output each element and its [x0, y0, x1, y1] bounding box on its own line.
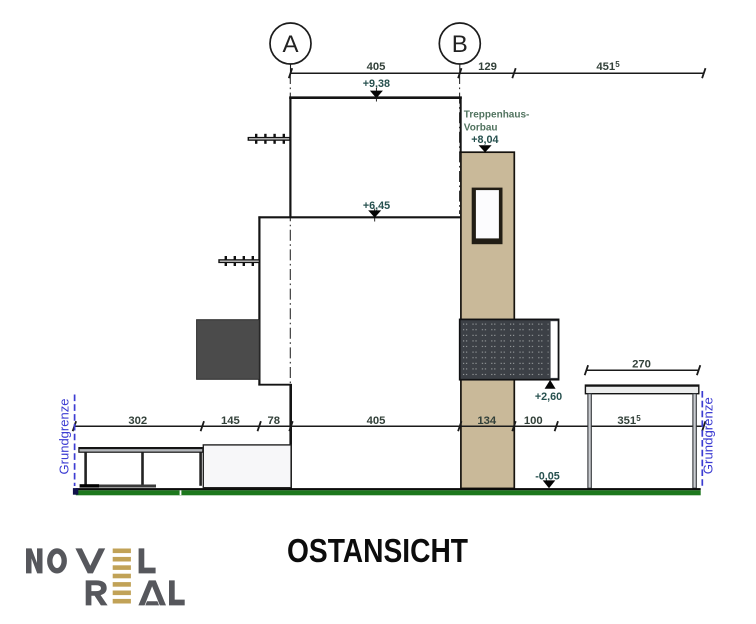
- svg-text:270: 270: [632, 358, 651, 370]
- svg-text:+2,60: +2,60: [535, 391, 562, 403]
- svg-text:129: 129: [478, 61, 497, 73]
- svg-text:+8,04: +8,04: [471, 134, 498, 146]
- svg-text:OSTANSICHT: OSTANSICHT: [287, 532, 468, 569]
- svg-text:Vorbau: Vorbau: [464, 122, 498, 133]
- svg-text:100: 100: [524, 415, 543, 427]
- svg-text:Grundgrenze: Grundgrenze: [701, 397, 716, 474]
- svg-text:4515: 4515: [596, 60, 620, 73]
- svg-text:B: B: [452, 31, 468, 58]
- svg-text:405: 405: [367, 61, 386, 73]
- svg-text:Treppenhaus-: Treppenhaus-: [464, 110, 530, 121]
- svg-text:134: 134: [477, 415, 497, 427]
- svg-text:78: 78: [268, 415, 281, 427]
- svg-text:302: 302: [128, 415, 147, 427]
- svg-text:405: 405: [367, 415, 386, 427]
- svg-text:145: 145: [221, 415, 240, 427]
- svg-text:3515: 3515: [617, 414, 641, 427]
- svg-text:A: A: [282, 31, 298, 58]
- svg-text:Grundgrenze: Grundgrenze: [56, 399, 71, 475]
